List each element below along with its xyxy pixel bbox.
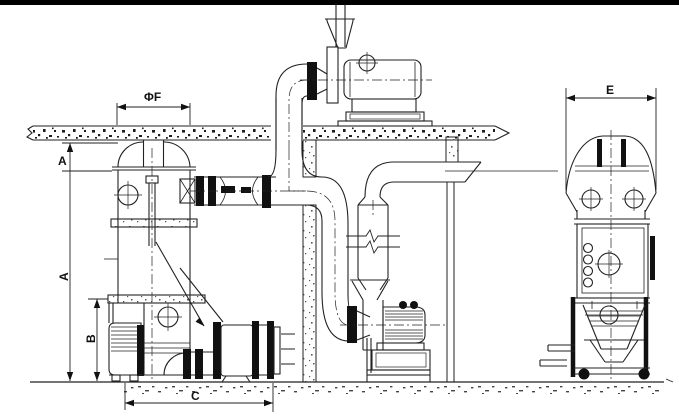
machine-side-view: [540, 130, 656, 382]
cyclone-silencer: [346, 162, 558, 300]
arrowhead: [264, 400, 273, 406]
drum-end-cap: [274, 327, 280, 374]
ground-line: [30, 379, 673, 394]
stack-flare: [325, 19, 355, 48]
down-pipe-elbow: [322, 292, 350, 341]
wheel: [639, 369, 650, 380]
support-column: [446, 137, 458, 382]
arrowhead: [117, 104, 126, 110]
dim-label-phi-f: ΦF: [144, 90, 161, 104]
arrowhead: [94, 299, 100, 308]
flange: [262, 175, 271, 208]
dome-slot: [597, 139, 602, 167]
break-line: [346, 241, 400, 253]
indicator: [584, 267, 593, 276]
indicator: [584, 278, 593, 287]
wheel: [579, 369, 590, 380]
arrowhead: [94, 372, 100, 381]
indicator: [584, 255, 593, 264]
flange: [252, 321, 259, 379]
ground-hatch: [122, 384, 660, 394]
valve-lever-tip: [241, 187, 251, 193]
valve-lever: [221, 186, 235, 193]
flange: [195, 349, 203, 379]
dome-arc-left: [118, 142, 143, 167]
dim-phi-f: ΦF: [117, 90, 190, 125]
dim-b: B: [84, 299, 108, 381]
dim-label-b: B: [84, 334, 98, 343]
wall-column: [303, 140, 316, 382]
discharge-stack: [336, 5, 345, 48]
top-elbow: [365, 162, 394, 197]
arrowhead: [67, 143, 73, 152]
base-plate: [367, 370, 430, 375]
motor-pedestal: [352, 99, 416, 112]
elevation-diagram: ΦF: [0, 0, 679, 418]
indicator: [584, 244, 593, 253]
dim-label-e: E: [606, 83, 614, 97]
arrowhead: [181, 104, 190, 110]
flow-arrow: [196, 318, 205, 327]
terminal-cap: [410, 301, 418, 309]
butterfly-valve-duct: [180, 175, 306, 208]
roof-exhaust-fan: [300, 5, 432, 127]
slab-break-right: [495, 126, 509, 140]
dim-label-a: A: [57, 272, 71, 281]
dim-label-c: C: [191, 389, 200, 403]
terminal-cap: [399, 301, 407, 309]
arrowhead: [125, 400, 134, 406]
flange: [137, 325, 144, 376]
arrowhead: [647, 95, 656, 101]
base-plate: [338, 121, 432, 126]
arrowhead: [566, 95, 575, 101]
flange: [213, 322, 221, 379]
dim-label-a-top: A: [58, 154, 67, 168]
column-hanger: [446, 137, 458, 162]
dome-arc-right: [164, 142, 190, 167]
break-line: [346, 230, 400, 242]
drawing-sheet: ΦF: [0, 0, 679, 418]
supply-blower-unit: [340, 300, 448, 382]
frame-post: [573, 297, 646, 377]
flange: [307, 62, 317, 100]
arrowhead: [67, 372, 73, 381]
slab-break-left: [27, 126, 33, 140]
discharge-stub: [540, 345, 575, 366]
flange-band-upper: [111, 219, 197, 227]
blower-scroll: [164, 353, 186, 375]
flange: [347, 306, 357, 343]
flange: [267, 321, 274, 379]
discharge-drum: [221, 325, 253, 376]
ceiling-slab: [27, 126, 509, 140]
fan-motor: [344, 60, 421, 99]
dome-slot: [621, 139, 626, 167]
inner-hopper: [584, 340, 644, 362]
hinge-strip: [650, 236, 655, 280]
flange: [183, 349, 191, 379]
inlet-cone: [317, 68, 327, 94]
horizontal-duct: [394, 162, 481, 182]
centerline: [289, 80, 349, 325]
fan-housing: [327, 47, 338, 103]
inlet-funnel: [350, 280, 390, 300]
